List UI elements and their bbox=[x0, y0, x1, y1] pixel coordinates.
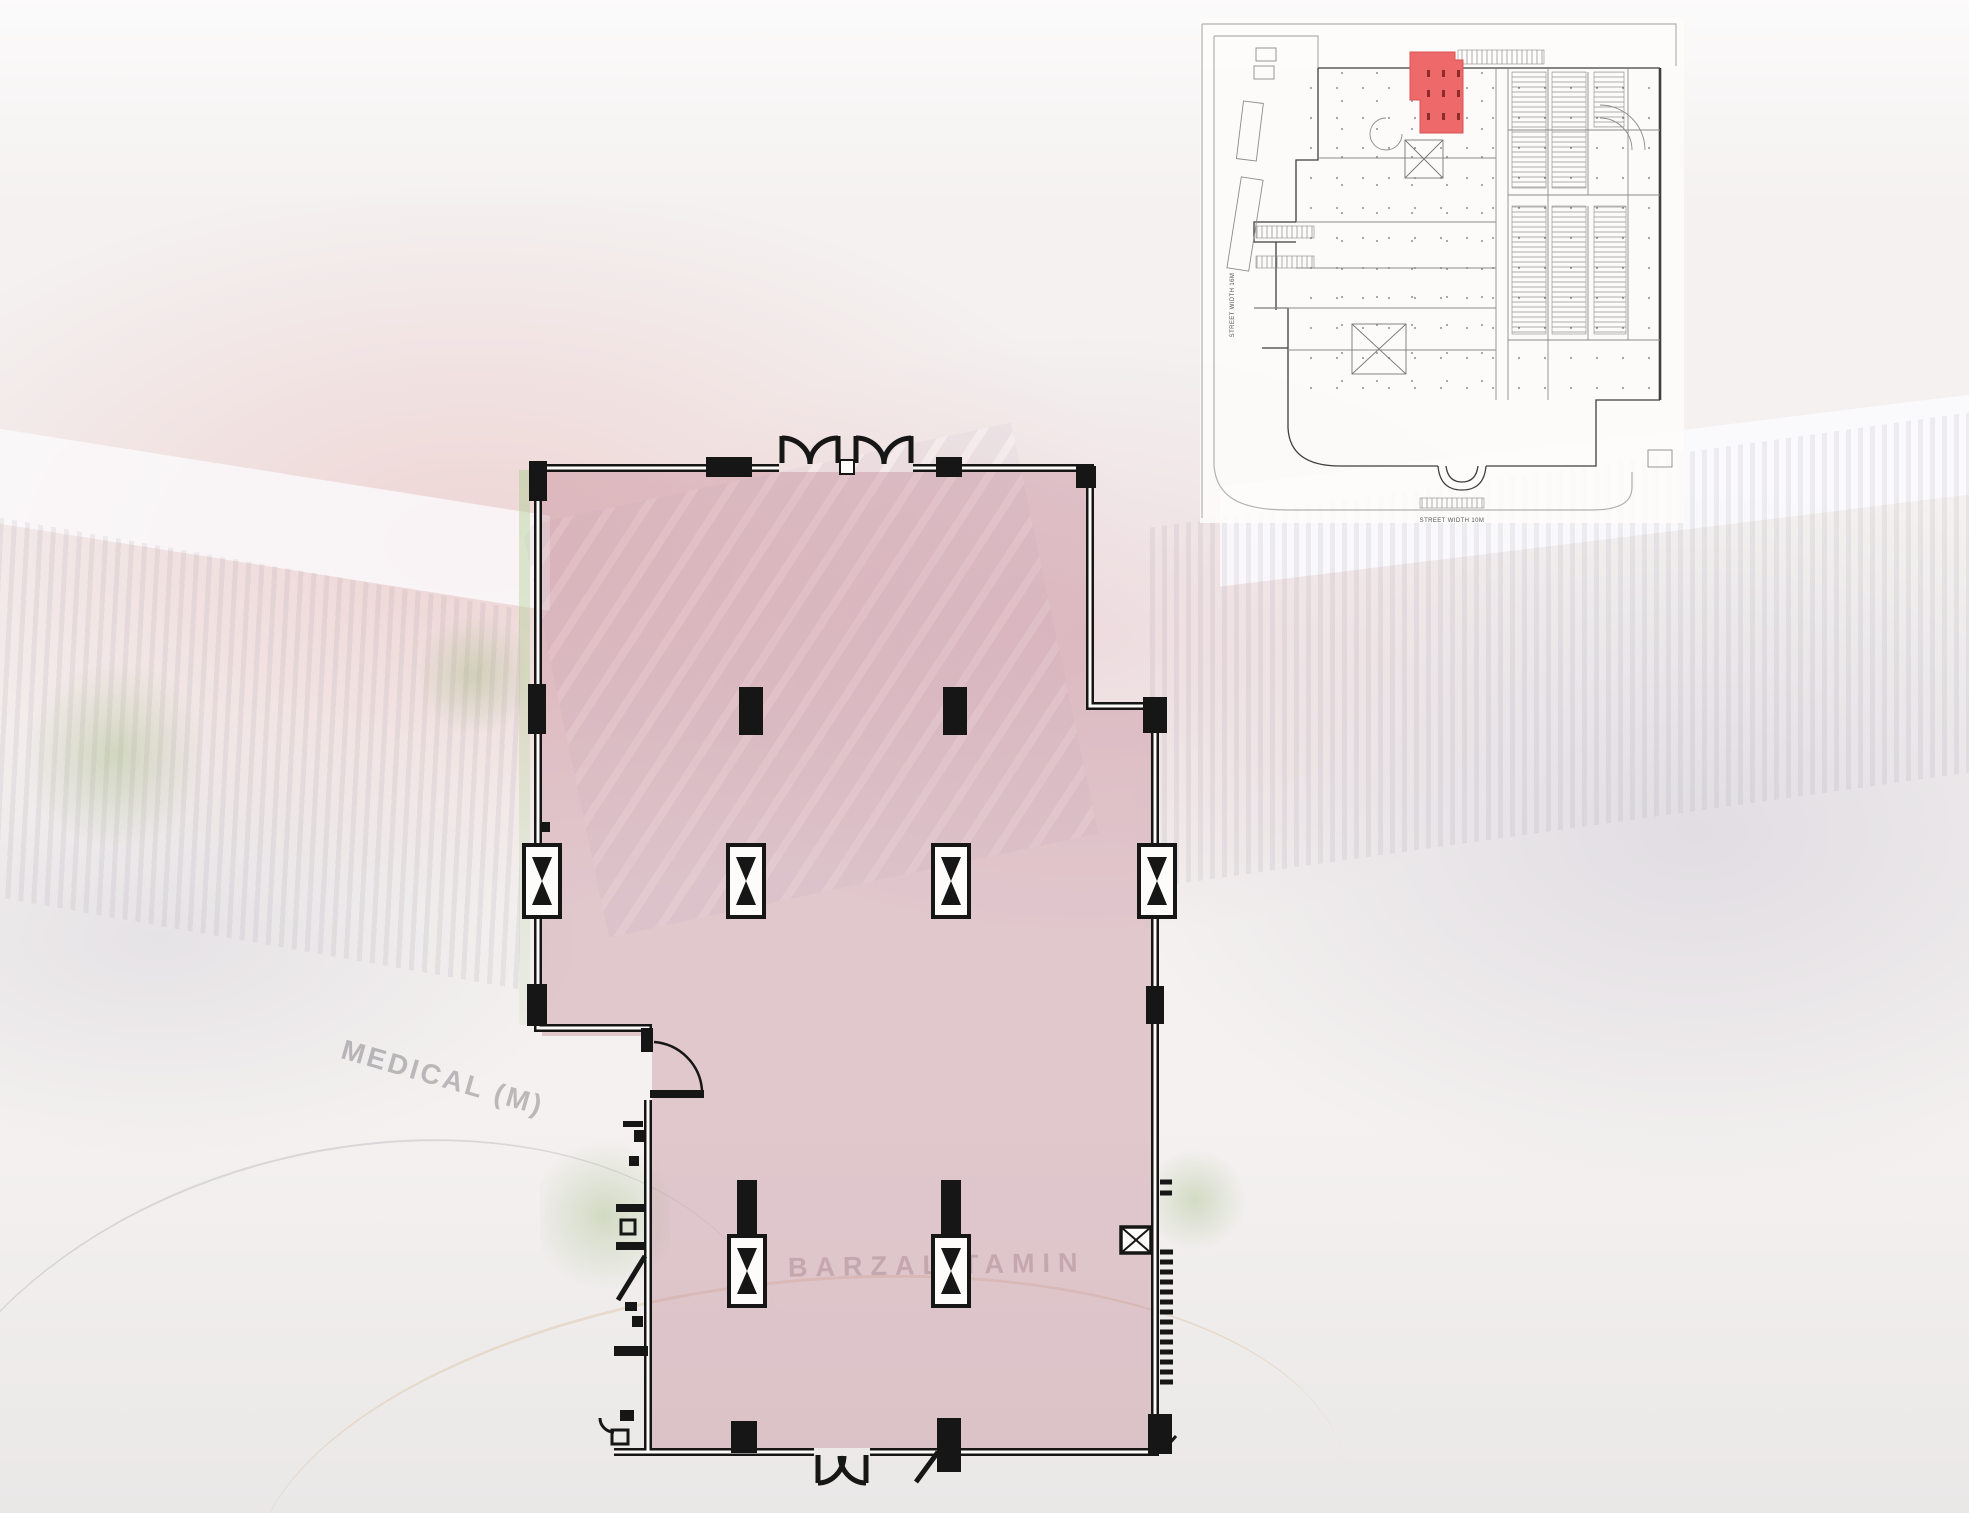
top-entrance-doors bbox=[782, 436, 911, 474]
background-palm-green bbox=[30, 640, 200, 870]
left-wall-fixture-diagonal bbox=[618, 1256, 645, 1300]
right-wall-grille bbox=[1160, 1252, 1173, 1382]
key-plan: STREET WIDTH 16M STREET WIDTH 10M bbox=[1200, 10, 1690, 540]
street-label-left: STREET WIDTH 16M bbox=[1230, 273, 1236, 338]
street-label-bottom: STREET WIDTH 10M bbox=[1420, 518, 1485, 524]
background-facade-left bbox=[0, 511, 520, 990]
page: MEDICAL (M) BARZAL TAMIN bbox=[0, 0, 1969, 1513]
background-roof-left bbox=[0, 424, 550, 611]
unit-highlight-overlay bbox=[542, 472, 1151, 1448]
unit-floor-plan bbox=[490, 420, 1200, 1513]
right-wall-utility-box bbox=[1121, 1227, 1151, 1253]
bottom-entrance-door bbox=[818, 1455, 866, 1483]
bottom-door-swing-tick bbox=[916, 1452, 938, 1482]
right-wall-ticks bbox=[1160, 1182, 1172, 1193]
